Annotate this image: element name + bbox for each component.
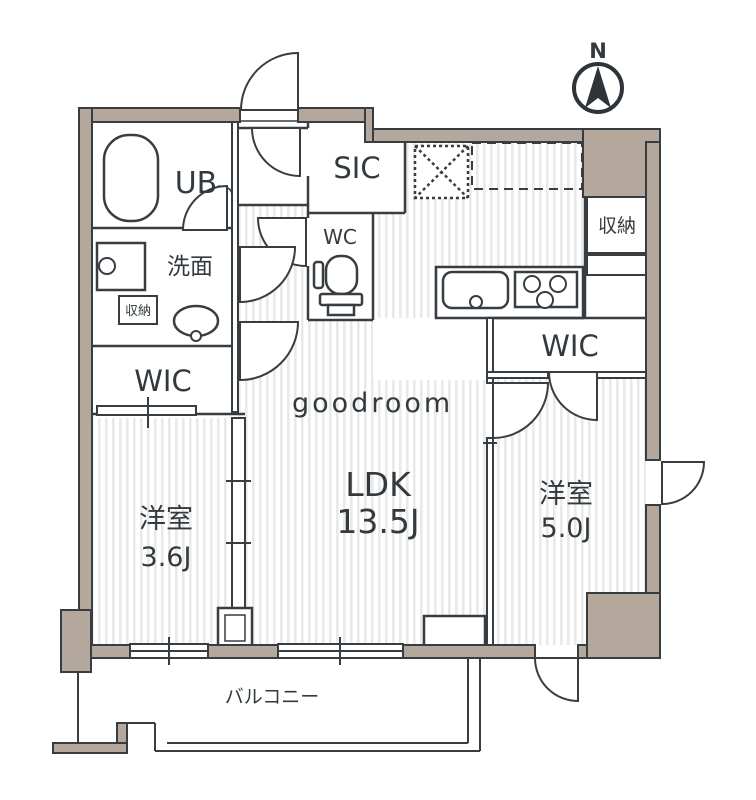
room-label-storage-small: 収納 bbox=[125, 304, 151, 319]
washing-machine-drain bbox=[99, 258, 115, 274]
room-label-ldk: LDK bbox=[345, 465, 412, 504]
room-label-sic: SIC bbox=[333, 151, 380, 185]
watermark: goodroom bbox=[292, 388, 453, 419]
compass-icon bbox=[574, 64, 622, 112]
bathtub bbox=[104, 135, 158, 221]
room-label-bedroom-left: 洋室 bbox=[139, 504, 193, 535]
refrigerator-space bbox=[415, 146, 468, 198]
door-gap-bottom bbox=[536, 646, 577, 657]
room-size-bedroom-right: 5.0J bbox=[541, 513, 592, 544]
room-size-bedroom-left: 3.6J bbox=[141, 542, 192, 573]
toilet-icon bbox=[314, 256, 362, 315]
room-label-balcony: バルコニー bbox=[225, 686, 320, 708]
floor-plan: N goodroom UB 洗面 収納 WIC SIC WC 収納 WIC LD… bbox=[0, 0, 756, 800]
stove-burner bbox=[550, 276, 566, 292]
balcony-pillar bbox=[61, 610, 91, 672]
exterior-door-bottom bbox=[535, 658, 578, 701]
sink-drain bbox=[470, 296, 482, 308]
exterior-door-right bbox=[662, 462, 704, 504]
north-label: N bbox=[589, 39, 607, 63]
balcony-corner-block bbox=[53, 743, 127, 753]
room-size-ldk: 13.5J bbox=[336, 502, 419, 541]
washbasin-drain bbox=[191, 331, 201, 341]
room-label-ub: UB bbox=[175, 166, 218, 201]
north-arrow-icon bbox=[585, 66, 611, 108]
room-label-wic-left: WIC bbox=[134, 364, 191, 398]
room-label-wc: WC bbox=[323, 225, 357, 249]
stove-burner bbox=[524, 276, 540, 292]
room-label-washroom: 洗面 bbox=[167, 254, 213, 280]
entrance-door bbox=[241, 53, 298, 110]
room-label-bedroom-right: 洋室 bbox=[539, 479, 593, 510]
room-label-wic-right: WIC bbox=[541, 329, 598, 363]
door-gap-right bbox=[646, 461, 660, 504]
kitchen-counter bbox=[436, 267, 583, 318]
room-label-storage-right: 収納 bbox=[598, 215, 636, 237]
balcony-corner-block bbox=[117, 723, 127, 743]
sliding-door-wic-left bbox=[97, 406, 196, 415]
stove-burner bbox=[537, 292, 553, 308]
floor-plan-drawing: N goodroom UB 洗面 収納 WIC SIC WC 収納 WIC LD… bbox=[0, 0, 756, 800]
